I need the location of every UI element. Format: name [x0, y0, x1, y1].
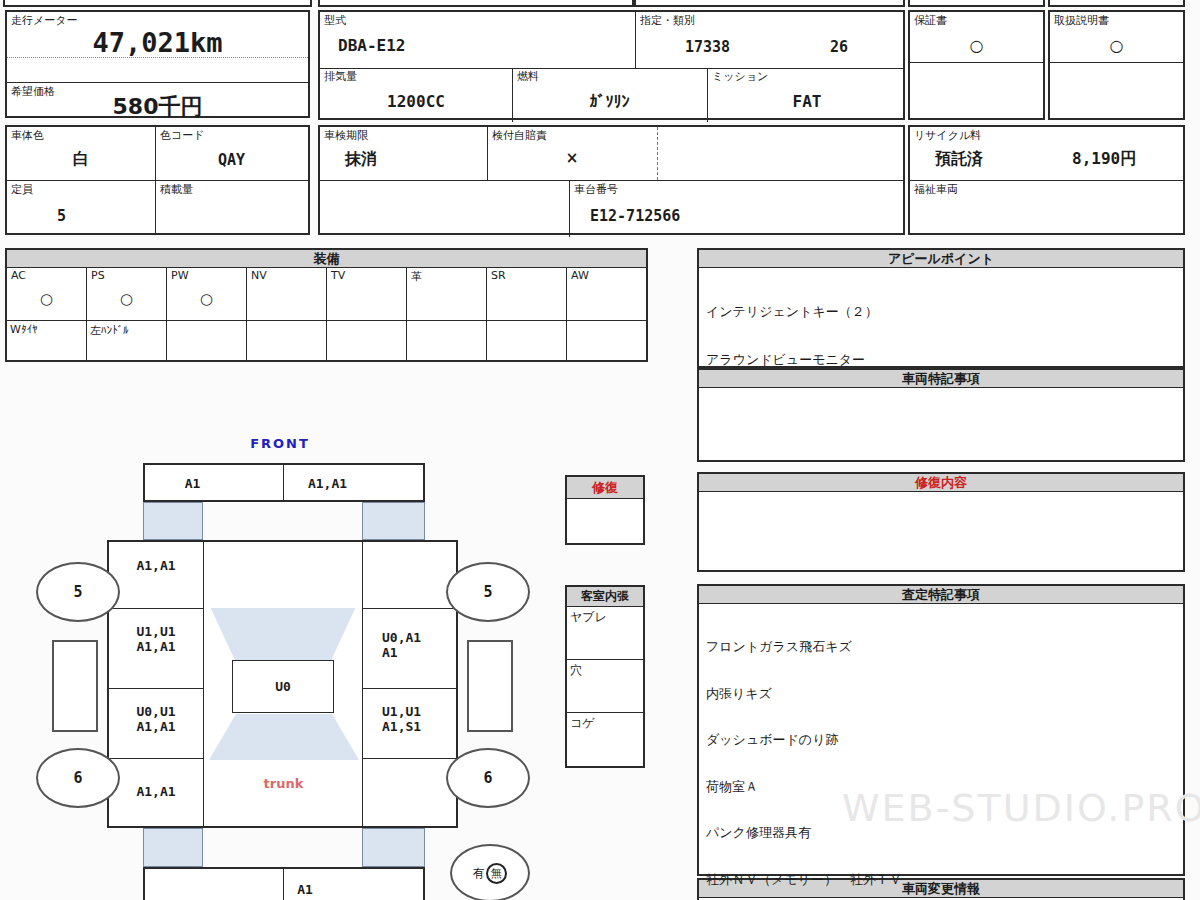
wheel-grade: 6 — [483, 769, 492, 787]
odometer-dotted-divider — [7, 57, 308, 58]
top-partial-cell — [318, 0, 634, 7]
equipment-header: AW — [571, 269, 589, 282]
panel-front-bumper-right: A1,A1 — [285, 476, 370, 491]
interior-row-label: ヤブレ — [570, 610, 607, 624]
body-color-label: 車体色 — [11, 128, 44, 143]
appeal-line: インテリジェントキー（２） — [706, 304, 1176, 320]
row-divider — [567, 320, 646, 321]
equipment-value: ○ — [167, 290, 246, 308]
panel-door-rear-left: U0,U1 A1,A1 — [109, 704, 203, 734]
rear-pillar-right — [362, 828, 425, 867]
color-code-value: QAY — [155, 151, 308, 169]
repair-legend: 修復 — [565, 475, 645, 545]
front-pillar-right — [362, 502, 425, 540]
repair-legend-title: 修復 — [567, 477, 643, 499]
interior-row-tear: ヤブレ — [567, 607, 643, 660]
equipment-col-leather: 革 — [406, 268, 486, 360]
appraisal-line: 内張りキズ — [706, 686, 1176, 702]
warranty-value: ○ — [910, 36, 1043, 55]
rear-pillar-left — [143, 828, 203, 867]
interior-row-label: 穴 — [570, 663, 582, 677]
warranty-table: 保証書 ○ — [908, 10, 1045, 120]
insurance-value: × — [487, 149, 657, 167]
insurance-label: 検付自賠責 — [492, 128, 547, 143]
price-value: 580千円 — [7, 92, 308, 122]
top-partial-cell — [634, 0, 905, 7]
repair-detail-section: 修復内容 — [697, 472, 1185, 572]
wheel-grade: 5 — [483, 583, 492, 601]
wheel-rear-right: 6 — [446, 748, 530, 808]
equipment-col-pw: PW ○ — [166, 268, 246, 360]
fuel-label: 燃料 — [517, 69, 539, 84]
model-value: DBA-E12 — [338, 36, 405, 55]
body-line — [203, 542, 204, 826]
col-divider — [569, 180, 570, 237]
recycle-label: リサイクル料 — [914, 128, 981, 143]
row-divider — [87, 320, 166, 321]
row-divider — [910, 180, 1183, 181]
recycle-status: 預託済 — [935, 149, 983, 170]
body-color-value: 白 — [7, 149, 155, 170]
row-divider — [320, 68, 903, 69]
row-divider — [327, 320, 406, 321]
odometer-value: 47,021km — [7, 27, 308, 58]
appraisal-line: 荷物室Ａ — [706, 779, 1176, 795]
equipment-header: SR — [491, 269, 506, 282]
wheel-front-left: 5 — [36, 562, 120, 622]
spare-absent-circled: 無 — [486, 863, 507, 884]
appraisal-line: パンク修理器具有 — [706, 825, 1176, 841]
panel-front-bumper-left: A1 — [145, 476, 240, 491]
price-divider — [7, 82, 308, 83]
col-divider — [155, 127, 156, 233]
trunk-label: trunk — [205, 776, 362, 791]
row-divider — [1050, 62, 1183, 63]
diagram-front-bumper: A1 A1,A1 — [143, 463, 425, 502]
row-divider — [407, 320, 486, 321]
class-label: 指定・類別 — [640, 13, 695, 28]
recycle-welfare-table: リサイクル料 預託済 8,190円 福祉車両 — [908, 125, 1185, 235]
model-label: 型式 — [324, 13, 346, 28]
roof-panel: U0 — [232, 660, 334, 713]
equipment-note: 左ﾊﾝﾄﾞﾙ — [90, 323, 129, 338]
load-label: 積載量 — [160, 182, 193, 197]
panel-roof: U0 — [275, 679, 291, 694]
class-value-2: 26 — [830, 38, 848, 56]
bumper-divider — [283, 465, 284, 500]
panel-fender-rear-left: A1,A1 — [109, 784, 203, 799]
row-divider — [7, 180, 308, 181]
appeal-section: アピールポイント インテリジェントキー（２） アラウンドビューモニター — [697, 248, 1185, 368]
equipment-title: 装備 — [7, 250, 646, 268]
chassis-label: 車台番号 — [574, 182, 618, 197]
appeal-title: アピールポイント — [699, 250, 1183, 268]
diagram-car-body: U0 A1,A1 U1,U1 A1,A1 U0,U1 A1,A1 A1,A1 U… — [107, 540, 458, 828]
appraisal-line: フロントガラス飛石キズ — [706, 639, 1176, 655]
warranty-label: 保証書 — [914, 13, 947, 28]
body-line — [362, 608, 456, 609]
mission-label: ミッション — [712, 69, 768, 84]
equipment-col-ac: AC ○ Wﾀｲﾔ — [7, 268, 86, 360]
odometer-label: 走行メーター — [11, 13, 78, 28]
row-divider — [7, 320, 86, 321]
repair-detail-title: 修復内容 — [699, 474, 1183, 492]
equipment-col-aw: AW — [566, 268, 646, 360]
interior-legend: 客室内張 ヤブレ 穴 コゲ — [565, 585, 645, 768]
appraisal-title: 査定特記事項 — [699, 586, 1183, 604]
equipment-value: ○ — [87, 290, 166, 308]
vehicle-notes-section: 車両特記事項 — [697, 368, 1185, 462]
chassis-value: E12-712566 — [590, 207, 680, 225]
manual-label: 取扱説明書 — [1054, 13, 1109, 28]
row-divider — [910, 62, 1043, 63]
manual-value: ○ — [1050, 36, 1183, 55]
displacement-label: 排気量 — [324, 69, 357, 84]
spare-tire-indicator: 有 無 — [450, 844, 530, 900]
body-line — [109, 758, 203, 759]
odometer-price-table: 走行メーター 47,021km 希望価格 580千円 — [5, 10, 310, 118]
auction-sheet: 走行メーター 47,021km 希望価格 580千円 型式 DBA-E12 指定… — [0, 0, 1200, 900]
interior-row-burn: コゲ — [567, 713, 643, 766]
wheel-front-right: 5 — [446, 562, 530, 622]
body-line — [362, 688, 456, 689]
inspection-chassis-table: 車検期限 抹消 検付自賠責 × 車台番号 E12-712566 — [318, 125, 905, 235]
dashed-divider — [657, 127, 658, 180]
row-divider — [487, 320, 566, 321]
body-line — [362, 542, 363, 826]
equipment-header: PS — [91, 269, 105, 282]
appraisal-line: ダッシュボードのり跡 — [706, 732, 1176, 748]
body-line — [109, 688, 203, 689]
welfare-label: 福祉車両 — [914, 182, 958, 197]
wheel-rear-left: 6 — [36, 748, 120, 808]
diagram-rear-bumper: A1 — [143, 867, 425, 900]
front-label: FRONT — [225, 436, 335, 451]
row-divider — [247, 320, 326, 321]
equipment-col-sr: SR — [486, 268, 566, 360]
equipment-header: 革 — [411, 269, 422, 284]
interior-row-hole: 穴 — [567, 660, 643, 713]
panel-rear-bumper-right: A1 — [245, 882, 365, 897]
panel-fender-front-left: A1,A1 — [109, 558, 203, 573]
displacement-value: 1200CC — [320, 92, 512, 111]
appraisal-line: 社外ＮＶ（メモリー） 社外ＴＶ — [706, 872, 1176, 888]
equipment-header: AC — [11, 269, 26, 282]
side-sill-left — [52, 640, 98, 732]
top-partial-cell — [1048, 0, 1185, 7]
windshield-glass — [206, 608, 360, 661]
side-sill-right — [467, 640, 513, 732]
equipment-header: TV — [331, 269, 345, 282]
appraisal-section: 査定特記事項 フロントガラス飛石キズ 内張りキズ ダッシュボードのり跡 荷物室Ａ… — [697, 584, 1185, 876]
mission-value: FAT — [707, 92, 907, 111]
rear-window-glass — [209, 714, 359, 760]
spare-present-label: 有 — [473, 865, 485, 882]
wheel-grade: 5 — [73, 583, 82, 601]
top-partial-cell — [908, 0, 1045, 7]
panel-door-front-left: U1,U1 A1,A1 — [109, 624, 203, 654]
equipment-table: 装備 AC ○ Wﾀｲﾔ PS ○ 左ﾊﾝﾄﾞﾙ PW ○ N — [5, 248, 648, 362]
col-divider — [635, 12, 636, 68]
equipment-header: PW — [171, 269, 189, 282]
interior-row-label: コゲ — [570, 716, 595, 730]
panel-door-front-right: U0,A1 A1 — [382, 630, 421, 660]
top-partial-cell — [3, 0, 312, 7]
equipment-note: Wﾀｲﾔ — [10, 323, 37, 336]
class-value-1: 17338 — [685, 38, 730, 56]
body-line — [109, 608, 203, 609]
equipment-value: ○ — [7, 290, 86, 308]
model-table: 型式 DBA-E12 指定・類別 17338 26 排気量 1200CC 燃料 … — [318, 10, 905, 120]
inspection-label: 車検期限 — [324, 128, 368, 143]
inspection-value: 抹消 — [345, 149, 377, 170]
appeal-line: アラウンドビューモニター — [706, 352, 1176, 368]
wheel-grade: 6 — [73, 769, 82, 787]
front-pillar-left — [143, 502, 203, 540]
row-divider — [320, 180, 903, 181]
equipment-header: NV — [251, 269, 267, 282]
recycle-amount: 8,190円 — [1072, 149, 1136, 170]
vehicle-notes-title: 車両特記事項 — [699, 370, 1183, 388]
spare-absent-label: 無 — [491, 866, 502, 881]
panel-door-rear-right: U1,U1 A1,S1 — [382, 704, 421, 734]
interior-legend-title: 客室内張 — [567, 587, 643, 607]
body-line — [362, 758, 456, 759]
color-capacity-table: 車体色 白 色コード QAY 定員 5 積載量 — [5, 125, 310, 235]
equipment-col-ps: PS ○ 左ﾊﾝﾄﾞﾙ — [86, 268, 166, 360]
equipment-col-nv: NV — [246, 268, 326, 360]
row-divider — [167, 320, 246, 321]
fuel-value: ｶﾞｿﾘﾝ — [512, 92, 707, 111]
capacity-value: 5 — [57, 207, 66, 225]
capacity-label: 定員 — [11, 182, 33, 197]
color-code-label: 色コード — [160, 128, 205, 143]
equipment-col-tv: TV — [326, 268, 406, 360]
manual-table: 取扱説明書 ○ — [1048, 10, 1185, 120]
